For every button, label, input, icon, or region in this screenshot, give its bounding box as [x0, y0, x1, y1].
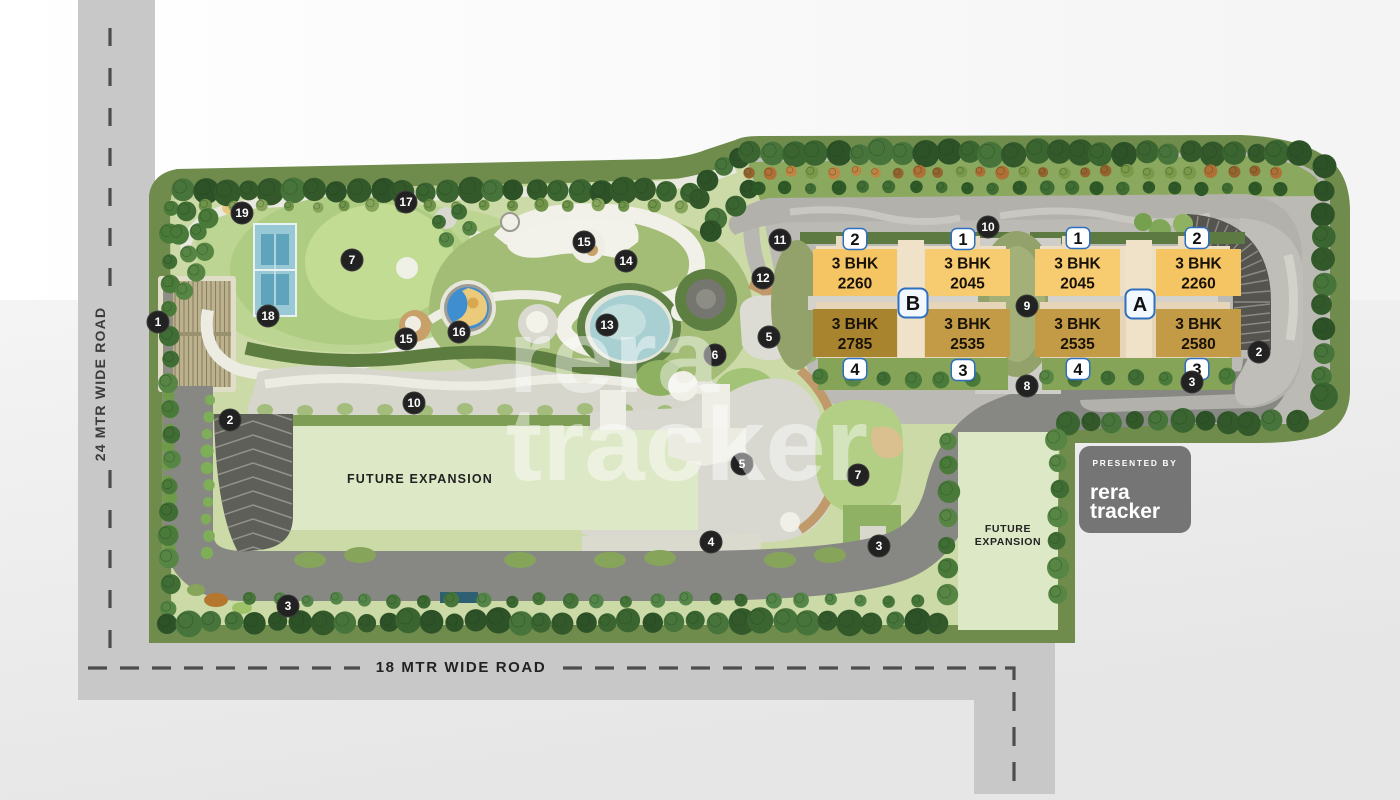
svg-text:3 BHK: 3 BHK: [832, 256, 879, 273]
svg-text:15: 15: [399, 332, 413, 346]
svg-text:2045: 2045: [1060, 276, 1095, 293]
svg-text:3 BHK: 3 BHK: [1054, 256, 1101, 273]
svg-text:4: 4: [708, 535, 715, 549]
svg-text:1: 1: [1073, 230, 1082, 248]
svg-text:FUTURE: FUTURE: [985, 523, 1031, 535]
svg-text:2: 2: [227, 413, 234, 427]
svg-text:3 BHK: 3 BHK: [1175, 256, 1222, 273]
svg-text:EXPANSION: EXPANSION: [975, 536, 1041, 548]
svg-text:2: 2: [850, 231, 859, 249]
svg-text:3 BHK: 3 BHK: [944, 316, 991, 333]
svg-text:tracker: tracker: [1090, 500, 1160, 523]
svg-text:3: 3: [1189, 375, 1196, 389]
svg-text:15: 15: [577, 235, 591, 249]
svg-text:3 BHK: 3 BHK: [944, 256, 991, 273]
svg-text:12: 12: [756, 271, 770, 285]
svg-text:2260: 2260: [838, 276, 872, 293]
svg-text:2535: 2535: [950, 336, 985, 353]
svg-text:18: 18: [261, 309, 275, 323]
svg-text:18 MTR WIDE ROAD: 18 MTR WIDE ROAD: [376, 659, 547, 676]
svg-text:2045: 2045: [950, 276, 985, 293]
svg-text:7: 7: [349, 253, 356, 267]
svg-text:3: 3: [876, 539, 883, 553]
svg-text:9: 9: [1024, 299, 1031, 313]
svg-text:A: A: [1133, 294, 1147, 316]
svg-text:4: 4: [1073, 361, 1083, 379]
svg-text:14: 14: [619, 254, 633, 268]
svg-text:3: 3: [285, 599, 292, 613]
svg-text:16: 16: [452, 325, 466, 339]
svg-text:2: 2: [1192, 230, 1201, 248]
svg-text:2535: 2535: [1060, 336, 1095, 353]
svg-text:24 MTR WIDE ROAD: 24 MTR WIDE ROAD: [92, 307, 108, 462]
svg-text:2580: 2580: [1181, 336, 1215, 353]
svg-text:3: 3: [958, 362, 967, 380]
svg-text:3 BHK: 3 BHK: [1175, 316, 1222, 333]
svg-text:1: 1: [958, 231, 967, 249]
svg-text:5: 5: [766, 330, 773, 344]
svg-text:2785: 2785: [838, 336, 873, 353]
svg-text:2260: 2260: [1181, 276, 1215, 293]
svg-text:8: 8: [1024, 379, 1031, 393]
svg-text:tracker: tracker: [506, 387, 868, 503]
svg-text:11: 11: [774, 233, 787, 247]
svg-text:2: 2: [1256, 345, 1263, 359]
svg-text:PRESENTED BY: PRESENTED BY: [1093, 458, 1178, 468]
svg-text:19: 19: [235, 206, 249, 220]
svg-text:10: 10: [407, 396, 421, 410]
svg-text:17: 17: [399, 195, 413, 209]
svg-text:3 BHK: 3 BHK: [832, 316, 879, 333]
svg-text:FUTURE EXPANSION: FUTURE EXPANSION: [347, 472, 493, 486]
svg-text:10: 10: [981, 220, 995, 234]
svg-text:B: B: [906, 293, 920, 315]
svg-text:4: 4: [850, 361, 860, 379]
svg-text:1: 1: [155, 315, 162, 329]
svg-text:3 BHK: 3 BHK: [1054, 316, 1101, 333]
